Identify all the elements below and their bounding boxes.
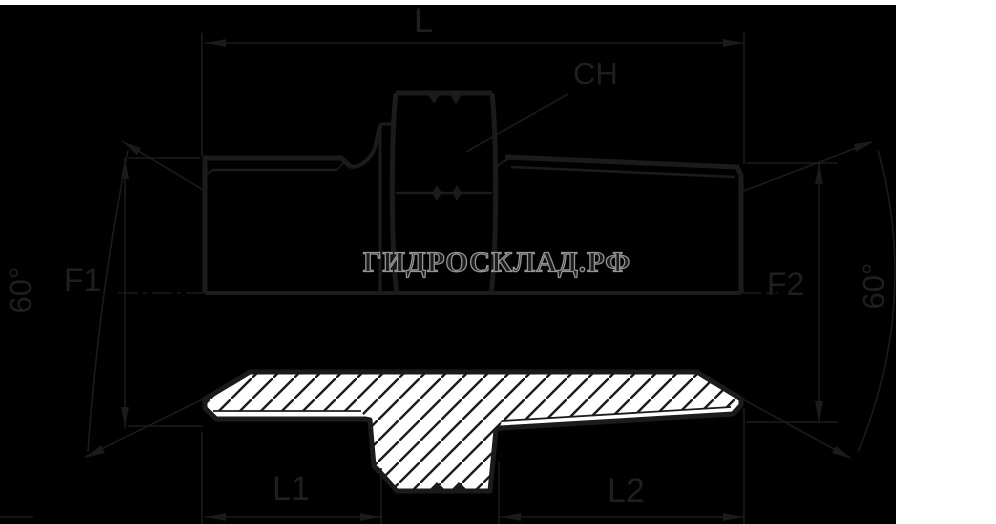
dim-label-length-left: L1 [272, 470, 310, 509]
angle-right-rays [741, 142, 872, 458]
hex-diamond-1 [432, 185, 442, 201]
watermark-text: ГИДРОСКЛАД.РФ [363, 247, 631, 280]
dim-label-cone-angle-left: 60° [4, 245, 38, 335]
dim-label-thread-left: F1 [64, 262, 101, 299]
hex-notch-2 [449, 93, 463, 104]
angle-left-arc [88, 150, 128, 452]
hex-notch-1 [427, 93, 441, 104]
dim-label-overall-length: L [414, 2, 433, 41]
hex-flat-marks-top [427, 93, 463, 201]
right-thread-root [511, 167, 735, 177]
dim-label-cone-angle-right: 60° [857, 241, 891, 331]
hex-diamond-2 [452, 185, 462, 201]
ch-leader-line [466, 94, 568, 152]
dim-label-wrench-size: CH [573, 56, 618, 92]
dim-label-length-right: L2 [607, 472, 645, 511]
drawing-canvas: L CH F1 F2 L1 L2 60° 60° ГИДРОСКЛАД.РФ [0, 0, 996, 524]
dim-label-thread-right: F2 [767, 266, 804, 303]
dim-l-extensions [202, 32, 744, 164]
neck-curve [351, 126, 380, 167]
left-thread-crest [205, 158, 351, 293]
